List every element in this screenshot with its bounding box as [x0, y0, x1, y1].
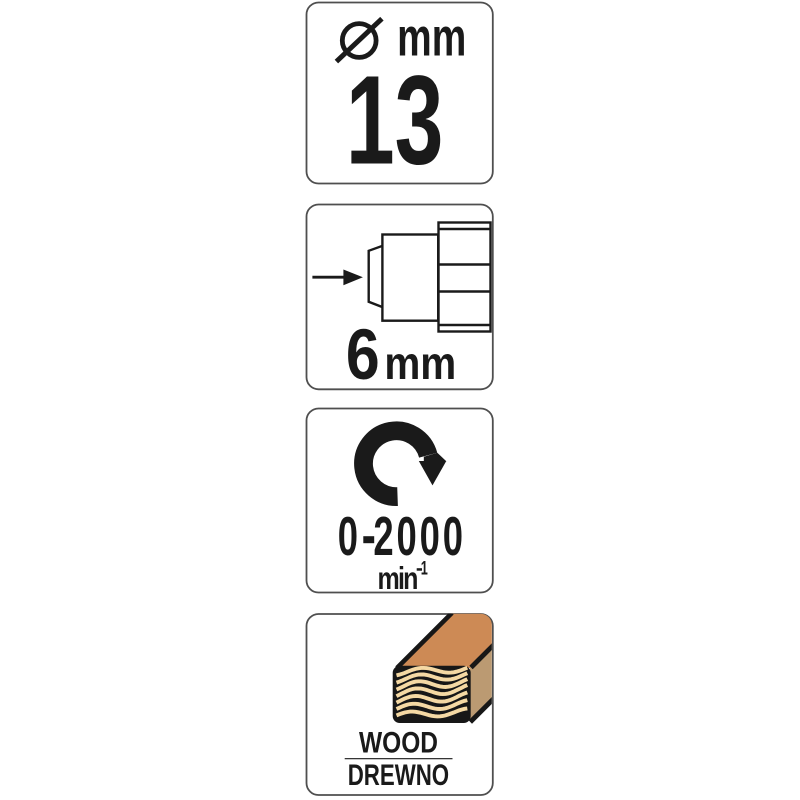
svg-text:min: min: [377, 561, 417, 597]
svg-text:WOOD: WOOD: [359, 726, 438, 758]
svg-text:0: 0: [338, 506, 358, 567]
svg-text:6: 6: [346, 316, 380, 396]
svg-text:DREWNO: DREWNO: [348, 758, 449, 792]
svg-text:13: 13: [346, 50, 444, 192]
svg-text:mm: mm: [384, 338, 456, 389]
svg-text:2000: 2000: [373, 506, 465, 567]
svg-text:1: 1: [421, 557, 428, 580]
